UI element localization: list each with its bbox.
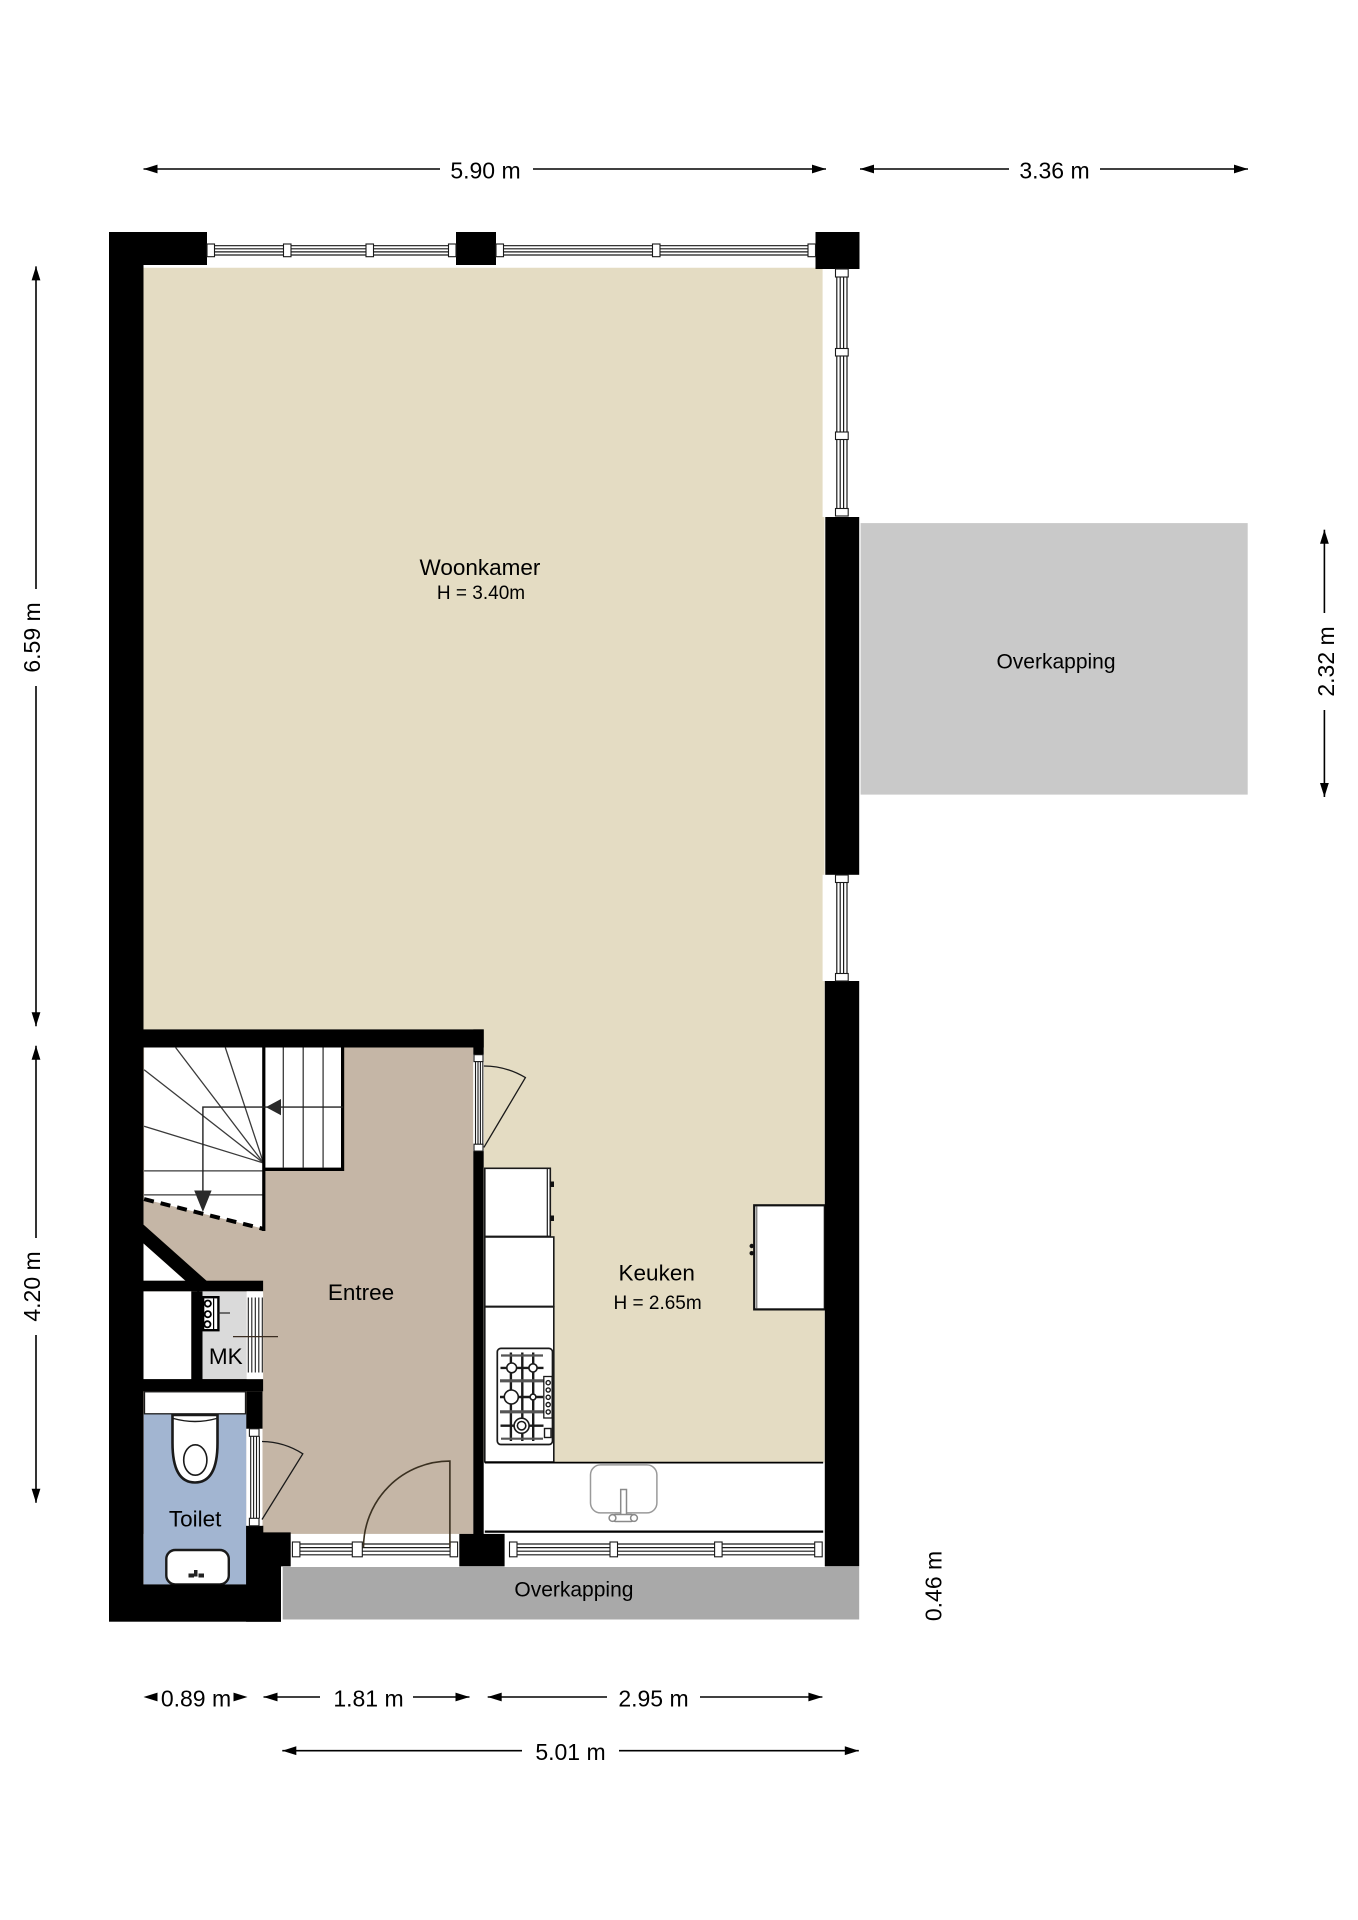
svg-text:MK: MK <box>209 1344 243 1369</box>
svg-text:H = 3.40m: H = 3.40m <box>437 583 525 604</box>
svg-text:4.20 m: 4.20 m <box>19 1251 45 1321</box>
svg-text:0.89 m: 0.89 m <box>161 1686 231 1712</box>
svg-text:Toilet: Toilet <box>169 1507 222 1532</box>
svg-text:Entree: Entree <box>328 1280 394 1305</box>
svg-text:5.90 m: 5.90 m <box>450 158 520 184</box>
svg-text:6.59 m: 6.59 m <box>19 602 45 672</box>
svg-text:3.36 m: 3.36 m <box>1019 158 1089 184</box>
svg-text:Keuken: Keuken <box>619 1261 695 1286</box>
svg-text:2.95 m: 2.95 m <box>618 1686 688 1712</box>
svg-text:5.01 m: 5.01 m <box>535 1739 605 1765</box>
svg-text:Woonkamer: Woonkamer <box>420 555 541 580</box>
svg-text:2.32 m: 2.32 m <box>1313 626 1339 696</box>
svg-text:1.81 m: 1.81 m <box>333 1686 403 1712</box>
svg-text:H = 2.65m: H = 2.65m <box>614 1293 702 1314</box>
svg-text:Overkapping: Overkapping <box>514 1578 633 1601</box>
svg-text:Overkapping: Overkapping <box>996 651 1115 674</box>
svg-text:0.46 m: 0.46 m <box>921 1551 947 1621</box>
